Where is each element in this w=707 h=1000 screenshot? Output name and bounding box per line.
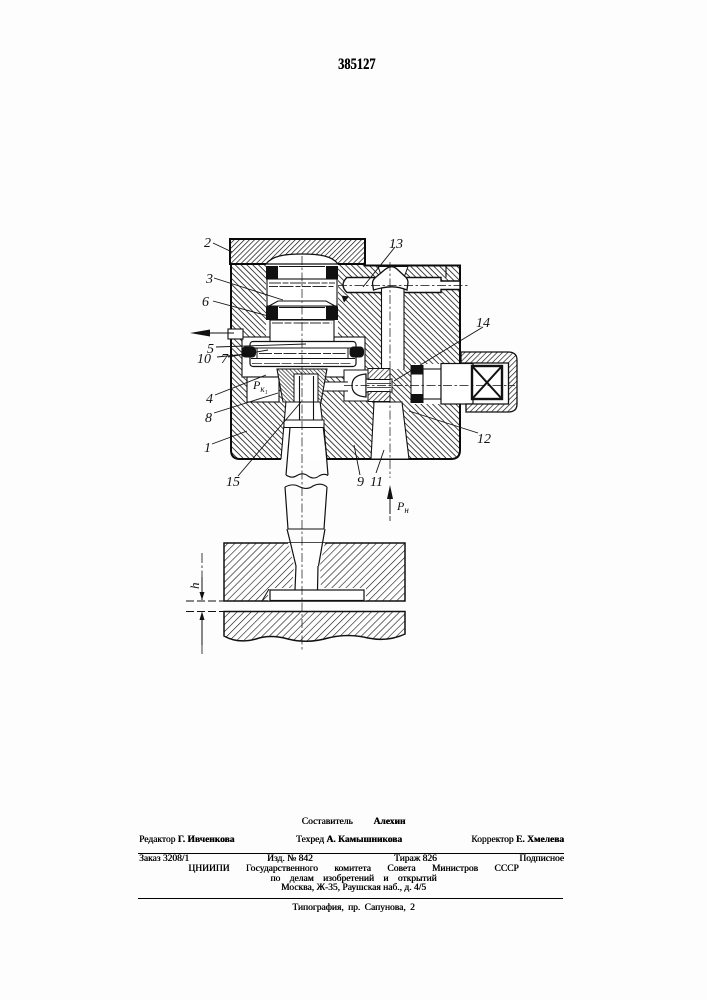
svg-text:11: 11 [370, 475, 383, 490]
svg-text:8: 8 [205, 411, 212, 426]
svg-text:6: 6 [202, 295, 209, 310]
svg-text:15: 15 [226, 475, 240, 490]
svg-text:1: 1 [204, 441, 211, 456]
svg-text:9: 9 [357, 475, 364, 490]
svg-text:Pн: Pн [396, 499, 409, 515]
svg-text:3: 3 [205, 272, 213, 287]
svg-text:7: 7 [221, 352, 229, 367]
svg-text:2: 2 [204, 236, 211, 251]
svg-text:10: 10 [197, 352, 211, 367]
svg-text:4: 4 [206, 392, 213, 407]
svg-text:h: h [187, 583, 202, 590]
svg-text:13: 13 [389, 237, 403, 252]
svg-text:12: 12 [477, 432, 491, 447]
svg-text:14: 14 [476, 316, 490, 331]
